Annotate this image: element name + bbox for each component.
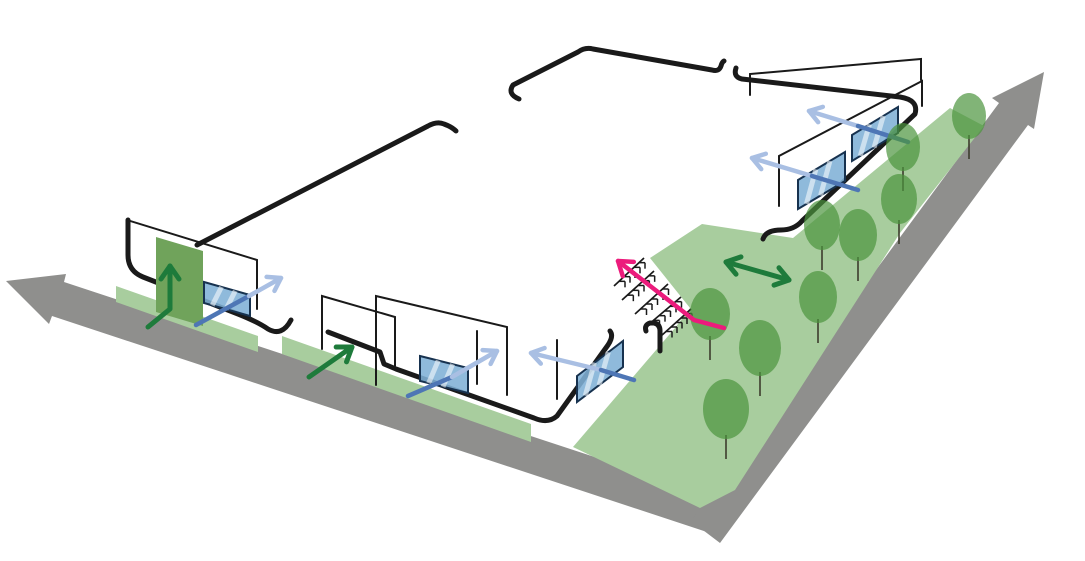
site-axonometric-diagram	[0, 0, 1085, 561]
diagram-canvas	[0, 0, 1085, 561]
tree	[690, 288, 730, 340]
tree	[804, 200, 840, 250]
tree	[881, 174, 917, 224]
tree	[703, 379, 749, 439]
tree	[886, 123, 920, 171]
tree	[799, 271, 837, 323]
building-outline-stair-edge	[646, 323, 661, 351]
tree	[739, 320, 781, 376]
tree	[839, 209, 877, 261]
site-outline-top	[511, 48, 724, 99]
site-outline-topleft	[197, 123, 456, 245]
tree	[952, 93, 986, 139]
